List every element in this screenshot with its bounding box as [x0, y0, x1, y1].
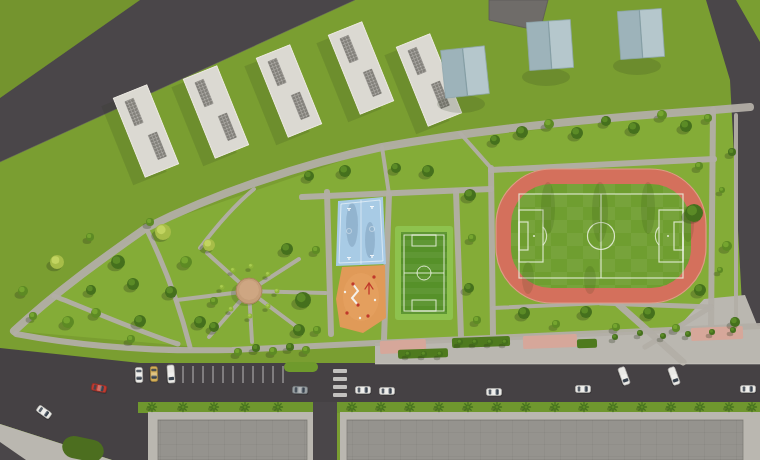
tree-crown — [253, 345, 257, 349]
building-roof-texture — [158, 420, 307, 460]
basketball-hoop — [348, 209, 350, 211]
tree-crown — [294, 325, 301, 332]
tree-crown — [314, 327, 318, 331]
tree-crown — [658, 111, 664, 117]
field-tree-shadow — [641, 182, 655, 234]
crosswalk-stripe — [333, 377, 347, 381]
tree-crown — [723, 242, 729, 248]
tree-crown — [303, 347, 307, 351]
play-equipment — [351, 282, 354, 285]
car — [380, 388, 396, 396]
pink-pavement — [523, 334, 578, 349]
tree-crown — [270, 348, 274, 352]
car — [149, 366, 158, 382]
park-aerial-render — [0, 0, 760, 460]
field-tree-shadow — [584, 266, 596, 294]
tree-crown — [731, 318, 737, 324]
tree-crown — [63, 317, 70, 324]
tree-crown — [469, 235, 473, 239]
tree-crown — [545, 120, 551, 126]
tree-crown — [681, 121, 688, 128]
play-equipment — [374, 299, 376, 301]
tree-crown — [30, 313, 34, 317]
park-path — [327, 192, 331, 334]
gabled-building — [617, 9, 664, 60]
tree-crown — [710, 330, 713, 333]
basketball-hoop — [348, 258, 350, 260]
tree-crown — [157, 225, 166, 234]
tree-crown — [135, 316, 142, 323]
car — [487, 389, 503, 397]
tree-crown — [581, 307, 588, 314]
tree-crown — [465, 284, 471, 290]
tree-crown — [629, 123, 636, 130]
field-lines — [533, 235, 535, 237]
tree-crown — [517, 127, 524, 134]
play-equipment — [359, 317, 361, 319]
tree-crown — [235, 349, 239, 353]
tree-crown — [211, 298, 215, 302]
tree-crown — [602, 117, 608, 123]
car — [741, 386, 757, 394]
tree-crown — [181, 257, 188, 264]
tree-crown — [519, 308, 526, 315]
tree-crown — [313, 247, 317, 251]
tree-crown — [340, 166, 347, 173]
tree-shadow — [225, 311, 231, 315]
tree-crown — [210, 323, 216, 329]
park-path — [491, 168, 493, 336]
gabled-building — [441, 46, 490, 98]
render-viewport — [0, 0, 760, 460]
tree-crown — [491, 136, 497, 142]
play-equipment — [372, 275, 375, 278]
field-tree-shadow — [522, 262, 534, 294]
tree-crown — [275, 289, 278, 292]
tree-crown — [406, 352, 409, 355]
tree-crown — [473, 340, 476, 343]
tree-crown — [553, 321, 557, 325]
tree-crown — [465, 190, 472, 197]
crosswalk-stripe — [333, 385, 347, 389]
tree-crown — [474, 317, 478, 321]
tree-crown — [458, 340, 461, 343]
tree-crown — [128, 279, 135, 286]
car — [134, 367, 143, 383]
play-equipment — [345, 311, 348, 314]
tree-crown — [729, 149, 733, 153]
basketball-hoop — [371, 256, 373, 258]
park-path — [711, 110, 713, 332]
tree-crown — [696, 163, 700, 167]
tree-crown — [229, 307, 232, 310]
tree-crown — [661, 334, 664, 337]
tree-crown — [282, 244, 289, 251]
tree-crown — [705, 115, 709, 119]
tree-crown — [644, 308, 651, 315]
tree-crown — [638, 331, 641, 334]
tree-crown — [392, 164, 398, 170]
play-equipment — [356, 303, 359, 306]
car — [166, 365, 176, 385]
tree-crown — [204, 240, 211, 247]
basketball-hoop — [371, 207, 373, 209]
tree-shadow — [245, 268, 251, 272]
field-tree-shadow — [541, 182, 555, 234]
crosswalk-stripe — [333, 369, 347, 373]
tree-crown — [249, 264, 252, 267]
tree-shadow — [262, 276, 268, 280]
tree-crown — [128, 336, 132, 340]
play-equipment — [344, 291, 346, 293]
tree-crown — [305, 172, 311, 178]
tree-crown — [287, 344, 291, 348]
tree-crown — [266, 304, 269, 307]
gabled-building — [526, 20, 573, 71]
basketball-hoop — [347, 257, 351, 258]
basketball-hoop — [370, 206, 374, 207]
tree-crown — [488, 340, 491, 343]
tree-crown — [231, 268, 234, 271]
tree-crown — [718, 268, 721, 271]
tree-crown — [52, 256, 60, 264]
basketball-hoop — [370, 255, 374, 256]
car — [356, 387, 372, 395]
tree-shadow — [262, 308, 268, 312]
tree-crown — [503, 340, 506, 343]
building-roof-texture — [347, 420, 743, 460]
car — [292, 386, 308, 395]
tree-crown — [266, 272, 269, 275]
tree-crown — [572, 128, 579, 135]
tree-crown — [92, 309, 98, 315]
court-tree-shadow — [346, 203, 358, 247]
tree-shadow — [227, 272, 233, 276]
tree-crown — [613, 335, 616, 338]
gable-shadow — [522, 68, 570, 86]
field-tree-shadow — [592, 182, 608, 242]
basketball-hoop — [347, 208, 351, 209]
gable-shadow — [437, 95, 485, 113]
tree-crown — [87, 234, 91, 238]
tree-shadow — [271, 293, 277, 297]
tree-crown — [673, 325, 677, 329]
tree-crown — [166, 287, 173, 294]
tree-shadow — [216, 289, 222, 293]
tree-crown — [297, 293, 306, 302]
gable-shadow — [613, 57, 661, 75]
tree-crown — [731, 328, 734, 331]
tree-shadow — [244, 318, 250, 322]
tree-crown — [686, 332, 689, 335]
field-lines — [667, 235, 669, 237]
play-equipment — [366, 314, 369, 317]
tree-crown — [687, 206, 697, 216]
tree-crown — [613, 324, 617, 328]
tree-crown — [248, 314, 251, 317]
plaza-gazebo-roof — [239, 280, 259, 300]
tree-crown — [438, 352, 441, 355]
traffic-island — [284, 362, 318, 372]
tree-crown — [720, 188, 723, 191]
tree-crown — [423, 166, 430, 173]
tree-crown — [147, 219, 151, 223]
tree-crown — [220, 285, 223, 288]
tree-crown — [695, 285, 702, 292]
tree-crown — [422, 352, 425, 355]
side-road — [313, 402, 337, 460]
tree-crown — [195, 317, 202, 324]
crosswalk-stripe — [333, 393, 347, 397]
tree-crown — [19, 287, 25, 293]
hedge — [577, 339, 597, 349]
tree-crown — [87, 286, 93, 292]
tree-crown — [113, 256, 121, 264]
car — [576, 386, 592, 394]
